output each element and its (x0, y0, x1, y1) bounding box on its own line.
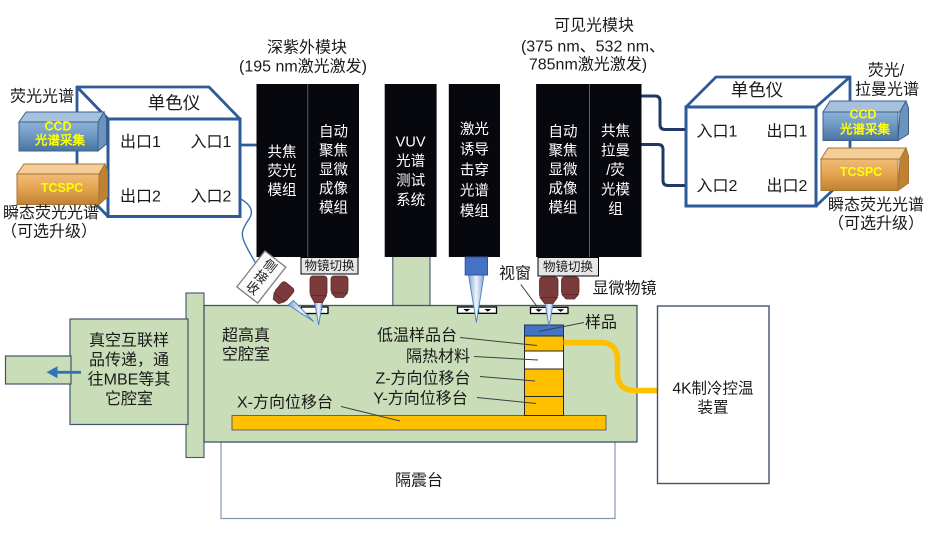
svg-text:空腔室: 空腔室 (222, 346, 270, 364)
svg-text:显微: 显微 (319, 162, 348, 179)
svg-text:出口1: 出口1 (120, 133, 161, 151)
svg-text:测试: 测试 (396, 173, 425, 190)
svg-text:（可选升级）: （可选升级） (1, 223, 97, 241)
svg-text:出口2: 出口2 (120, 188, 161, 206)
svg-text:共焦: 共焦 (601, 123, 630, 140)
svg-text:可见光模块: 可见光模块 (554, 17, 634, 35)
svg-text:入口2: 入口2 (697, 178, 738, 195)
svg-text:自动: 自动 (319, 124, 348, 141)
svg-text:自动: 自动 (549, 124, 578, 141)
svg-text:CCD: CCD (44, 120, 71, 134)
svg-text:模组: 模组 (319, 200, 348, 217)
svg-text:聚焦: 聚焦 (319, 143, 348, 160)
svg-text:荧光: 荧光 (268, 163, 297, 180)
svg-text:瞬态荧光光谱: 瞬态荧光光谱 (828, 196, 924, 214)
svg-text:击穿: 击穿 (460, 162, 489, 179)
svg-text:入口2: 入口2 (191, 189, 232, 206)
svg-text:TCSPC: TCSPC (41, 181, 83, 195)
svg-text:拉曼光谱: 拉曼光谱 (855, 81, 919, 99)
svg-text:系统: 系统 (396, 192, 425, 209)
svg-text:隔热材料: 隔热材料 (406, 348, 470, 366)
svg-text:视窗: 视窗 (499, 265, 531, 283)
svg-text:Z-方向位移台: Z-方向位移台 (375, 370, 470, 388)
svg-text:(195 nm激光激发): (195 nm激光激发) (239, 58, 367, 76)
svg-text:荧光光谱: 荧光光谱 (10, 88, 74, 106)
svg-text:显微物镜: 显微物镜 (592, 279, 656, 298)
svg-text:组: 组 (608, 201, 623, 218)
svg-text:光谱: 光谱 (396, 153, 425, 170)
svg-text:显微: 显微 (549, 162, 578, 179)
svg-text:低温样品台: 低温样品台 (377, 327, 457, 345)
svg-text:4K制冷控温: 4K制冷控温 (673, 380, 754, 398)
svg-text:装置: 装置 (697, 399, 728, 417)
svg-text:入口1: 入口1 (191, 134, 232, 151)
svg-text:模组: 模组 (268, 182, 297, 199)
svg-text:（可选升级）: （可选升级） (828, 215, 924, 233)
svg-text:785nm激光激发): 785nm激光激发) (529, 56, 647, 74)
svg-text:物镜切换: 物镜切换 (304, 258, 355, 273)
svg-text:拉曼: 拉曼 (601, 143, 630, 160)
svg-text:单色仪: 单色仪 (148, 93, 201, 113)
svg-text:样品: 样品 (585, 314, 617, 332)
svg-text:/荧: /荧 (606, 162, 625, 179)
svg-text:荧光/: 荧光/ (868, 62, 905, 80)
svg-text:聚焦: 聚焦 (549, 143, 578, 160)
svg-text:X-方向位移台: X-方向位移台 (237, 394, 333, 412)
svg-text:光模: 光模 (601, 182, 630, 199)
svg-text:出口1: 出口1 (767, 123, 808, 141)
svg-text:诱导: 诱导 (460, 142, 489, 159)
svg-text:模组: 模组 (460, 203, 489, 220)
svg-text:VUV: VUV (396, 135, 426, 151)
svg-text:CCD: CCD (849, 108, 876, 122)
svg-text:单色仪: 单色仪 (731, 80, 784, 100)
svg-text:光谱采集: 光谱采集 (34, 133, 86, 148)
svg-text:它腔室: 它腔室 (105, 390, 153, 408)
svg-text:激光: 激光 (460, 121, 489, 138)
svg-text:成像: 成像 (549, 181, 578, 198)
svg-text:品传递，通: 品传递，通 (89, 351, 169, 369)
svg-text:模组: 模组 (549, 200, 578, 217)
svg-text:TCSPC: TCSPC (840, 165, 882, 179)
svg-text:深紫外模块: 深紫外模块 (267, 39, 347, 57)
svg-text:成像: 成像 (319, 181, 348, 198)
svg-text:瞬态荧光光谱: 瞬态荧光光谱 (3, 204, 99, 222)
svg-text:光谱采集: 光谱采集 (839, 122, 891, 137)
svg-text:(375 nm、532 nm、: (375 nm、532 nm、 (521, 39, 665, 56)
svg-text:出口2: 出口2 (767, 177, 808, 195)
svg-text:共焦: 共焦 (268, 144, 297, 161)
svg-text:往MBE等其: 往MBE等其 (88, 371, 171, 389)
svg-text:物镜切换: 物镜切换 (543, 259, 594, 274)
svg-text:Y-方向位移台: Y-方向位移台 (373, 390, 468, 408)
svg-text:光谱: 光谱 (460, 183, 489, 200)
svg-text:真空互联样: 真空互联样 (89, 332, 169, 350)
svg-text:超高真: 超高真 (222, 327, 270, 345)
svg-text:入口1: 入口1 (697, 124, 738, 141)
svg-text:隔震台: 隔震台 (395, 472, 443, 490)
